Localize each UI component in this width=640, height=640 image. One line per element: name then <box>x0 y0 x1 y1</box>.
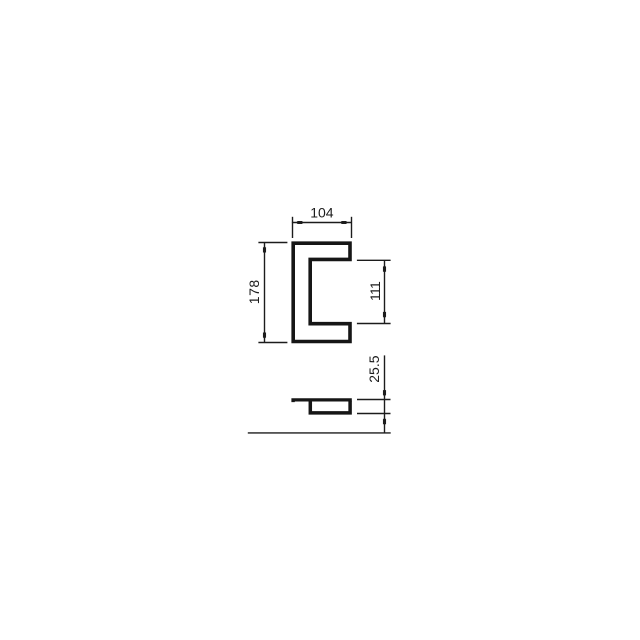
svg-text:111: 111 <box>367 281 383 301</box>
svg-text:104: 104 <box>310 205 334 221</box>
svg-text:25.5: 25.5 <box>366 355 382 382</box>
svg-text:178: 178 <box>246 279 262 304</box>
